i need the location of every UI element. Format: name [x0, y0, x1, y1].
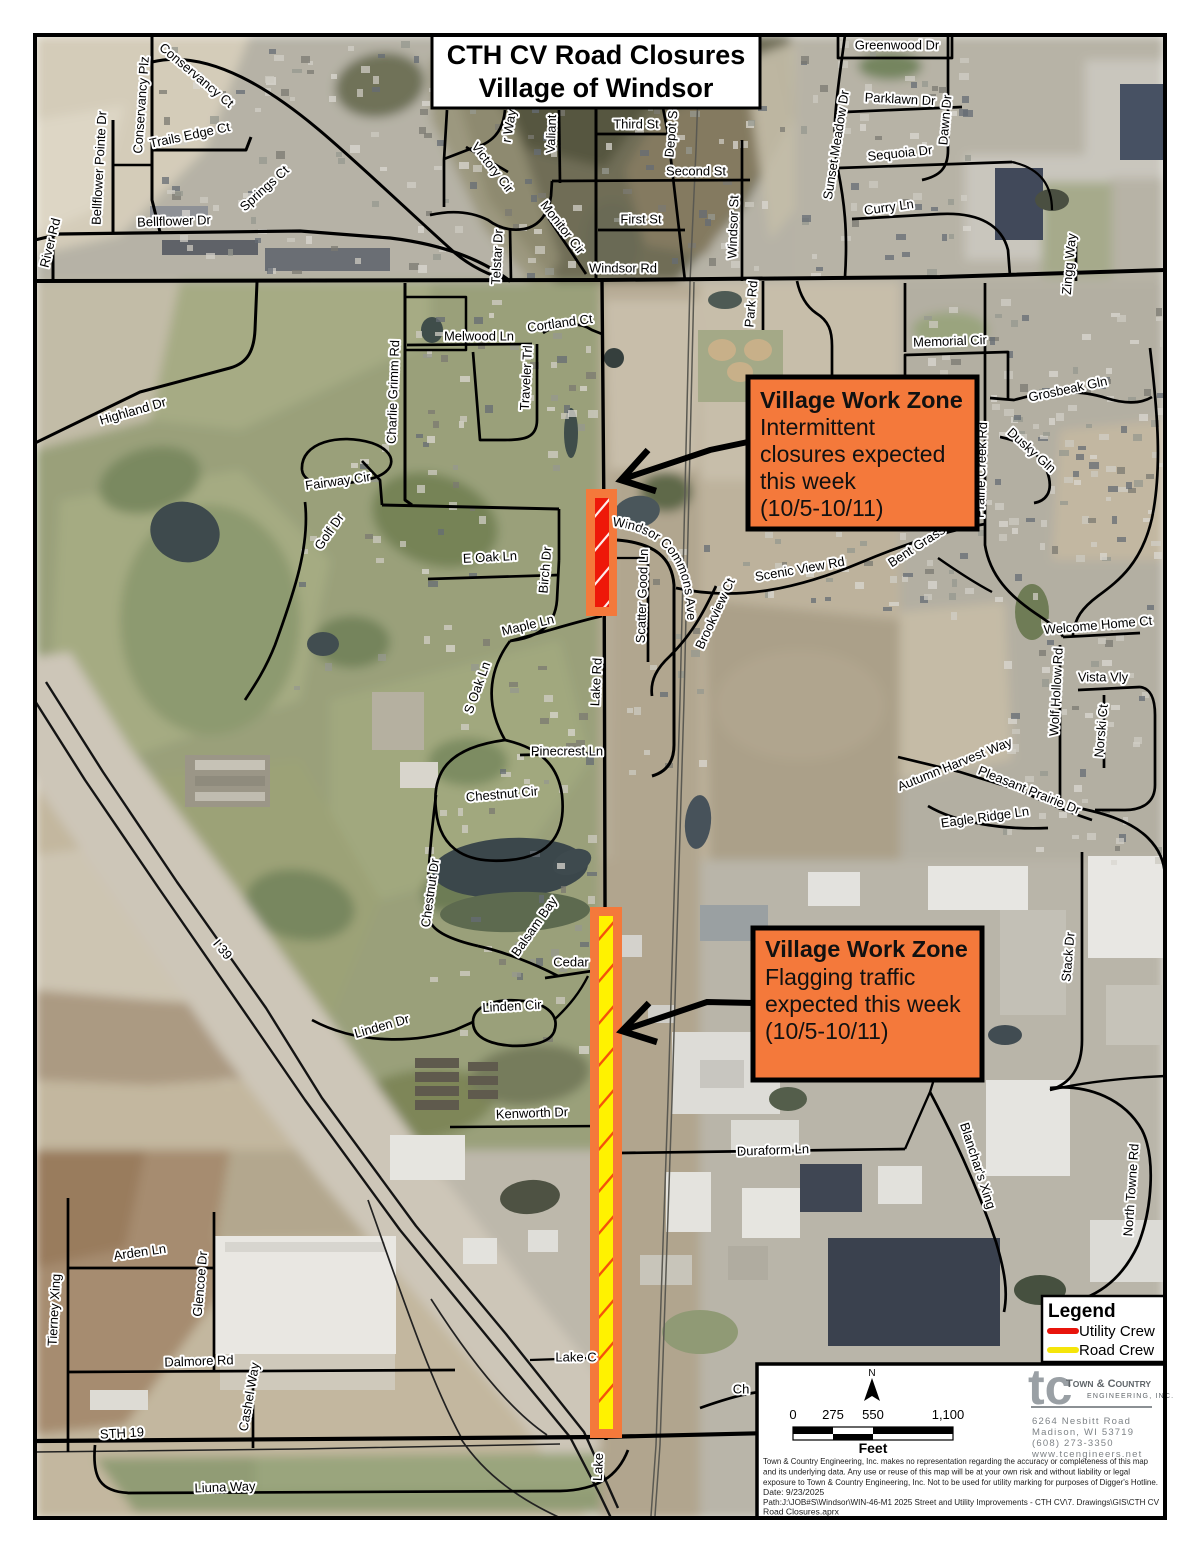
svg-text:Valiant: Valiant	[543, 114, 559, 154]
svg-text:Telstar Dr: Telstar Dr	[488, 228, 506, 285]
svg-text:Lake: Lake	[590, 1452, 606, 1481]
svg-text:Intermittent: Intermittent	[760, 414, 876, 440]
svg-text:1,100: 1,100	[932, 1407, 965, 1422]
svg-text:275: 275	[822, 1407, 844, 1422]
svg-text:ENGINEERING, INC.: ENGINEERING, INC.	[1087, 1393, 1174, 1400]
svg-text:Village of Windsor: Village of Windsor	[479, 73, 714, 103]
svg-text:Lake C: Lake C	[555, 1349, 596, 1364]
svg-text:Third St: Third St	[613, 116, 659, 131]
svg-text:Second St: Second St	[666, 163, 726, 178]
svg-text:Feet: Feet	[859, 1440, 888, 1456]
svg-text:(10/5-10/11): (10/5-10/11)	[760, 495, 884, 521]
svg-text:Path:J:\JOB#S\Windsor\WIN-46-M: Path:J:\JOB#S\Windsor\WIN-46-M1 2025 Str…	[763, 1497, 1159, 1507]
svg-text:and its underlying data. Any: and its underlying data. Any use or reus…	[763, 1467, 1130, 1477]
svg-text:0: 0	[789, 1407, 796, 1422]
svg-text:Road Crew: Road Crew	[1079, 1342, 1154, 1359]
svg-text:Liuna Way: Liuna Way	[194, 1478, 256, 1495]
svg-text:CTH CV Road Closures: CTH CV Road Closures	[447, 40, 746, 70]
svg-text:Village Work Zone: Village Work Zone	[765, 936, 968, 962]
svg-text:Bellflower Dr: Bellflower Dr	[137, 212, 212, 230]
svg-text:exposure to Town & Country Eng: exposure to Town & Country Engineering, …	[763, 1477, 1158, 1487]
svg-text:Windsor St: Windsor St	[724, 195, 741, 259]
svg-text:Madison, WI 53719: Madison, WI 53719	[1032, 1427, 1134, 1438]
svg-text:Duraform Ln: Duraform Ln	[737, 1141, 810, 1159]
svg-text:Windsor Rd: Windsor Rd	[589, 260, 657, 275]
svg-text:(10/5-10/11): (10/5-10/11)	[765, 1018, 889, 1044]
svg-text:550: 550	[862, 1407, 884, 1422]
svg-text:Vista Vly: Vista Vly	[1078, 669, 1129, 684]
svg-text:6264 Nesbitt Road: 6264 Nesbitt Road	[1032, 1416, 1131, 1427]
svg-text:TOWN & COUNTRY: TOWN & COUNTRY	[1066, 1378, 1151, 1390]
svg-text:Legend: Legend	[1048, 1301, 1116, 1322]
svg-text:Village Work Zone: Village Work Zone	[760, 387, 963, 413]
svg-text:Utility Crew: Utility Crew	[1079, 1323, 1155, 1340]
svg-text:Memorial Cir: Memorial Cir	[913, 332, 988, 350]
svg-text:Dalmore Rd: Dalmore Rd	[164, 1352, 234, 1369]
svg-text:N: N	[868, 1368, 875, 1379]
svg-text:(608) 273-3350: (608) 273-3350	[1032, 1438, 1114, 1449]
svg-text:STH 19: STH 19	[100, 1424, 145, 1441]
svg-text:Lake Rd: Lake Rd	[587, 657, 605, 706]
svg-text:Town & Country Engineering, In: Town & Country Engineering, Inc. makes n…	[763, 1456, 1148, 1466]
svg-text:Melwood Ln: Melwood Ln	[444, 328, 514, 343]
svg-text:Cedar: Cedar	[553, 954, 589, 969]
svg-text:E Oak Ln: E Oak Ln	[462, 548, 517, 566]
svg-text:Ch: Ch	[733, 1381, 750, 1396]
svg-text:expected this week: expected this week	[765, 991, 961, 1017]
svg-text:Road Closures.aprx: Road Closures.aprx	[763, 1507, 840, 1517]
svg-text:Flagging traffic: Flagging traffic	[765, 964, 915, 990]
svg-text:Pinecrest Ln: Pinecrest Ln	[531, 743, 603, 758]
svg-text:Greenwood Dr: Greenwood Dr	[855, 37, 940, 52]
svg-text:closures expected: closures expected	[760, 441, 945, 467]
svg-text:Linden Cir: Linden Cir	[482, 997, 543, 1015]
svg-text:Date: 9/23/2025: Date: 9/23/2025	[763, 1487, 824, 1497]
svg-text:this week: this week	[760, 468, 856, 494]
svg-text:Kenworth Dr: Kenworth Dr	[496, 1104, 569, 1122]
svg-text:First St: First St	[620, 211, 662, 226]
